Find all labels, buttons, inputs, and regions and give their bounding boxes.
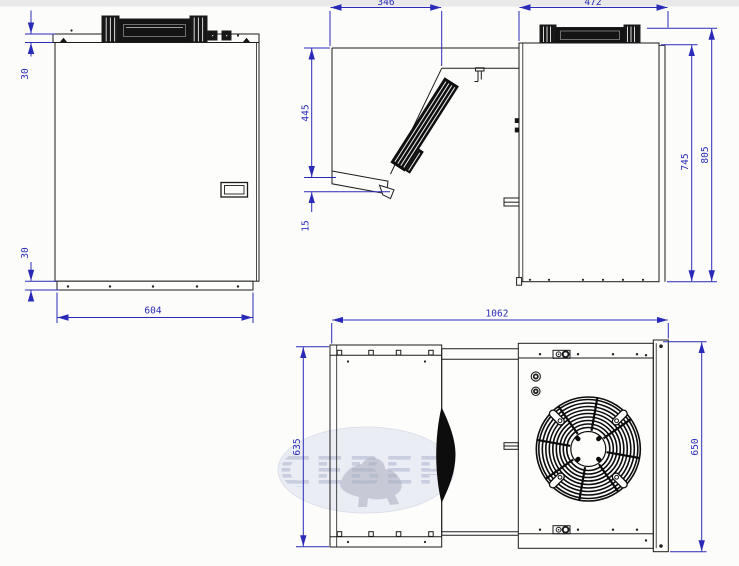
dim-label-evap-width: 635: [292, 438, 303, 455]
dim-label-total-height: 805: [700, 146, 711, 163]
drip-tray: [332, 171, 388, 194]
dim-label-evap-depth: 346: [377, 0, 394, 8]
side-view: 346 445 15 472 745 805: [300, 0, 717, 285]
dim-label-cond-width: 650: [690, 438, 701, 455]
evaporator-coil: [390, 77, 463, 174]
drain-fitting: [517, 278, 522, 286]
drawing-page: 30 30 604: [0, 0, 739, 566]
page-top-border: [0, 0, 739, 7]
drawing-canvas: 30 30 604: [0, 0, 739, 566]
wall-mount-bracket: [475, 68, 485, 82]
front-panel: [55, 43, 259, 282]
dim-label-flange-top: 30: [20, 68, 31, 80]
front-view: 30 30 604: [20, 11, 259, 324]
front-bottom-flange: [57, 281, 253, 290]
pipe-stub-top: [504, 443, 518, 450]
dim-label-cond-height: 745: [680, 153, 691, 170]
watermark-logo: СЕВЕР: [278, 427, 454, 513]
dim-label-width: 604: [144, 306, 161, 317]
pipe-stub: [504, 198, 519, 206]
dim-label-flange-bottom: 30: [20, 247, 31, 259]
condenser-body: [519, 43, 659, 282]
top-handle: [102, 16, 207, 43]
dim-label-cond-depth: 472: [584, 0, 601, 8]
top-view: СЕВЕР: [278, 309, 707, 552]
dim-label-total-length: 1062: [486, 309, 509, 320]
dim-label-tray-drop: 15: [300, 220, 311, 231]
top-grille: [540, 25, 640, 43]
dim-label-evap-height: 445: [300, 104, 311, 121]
